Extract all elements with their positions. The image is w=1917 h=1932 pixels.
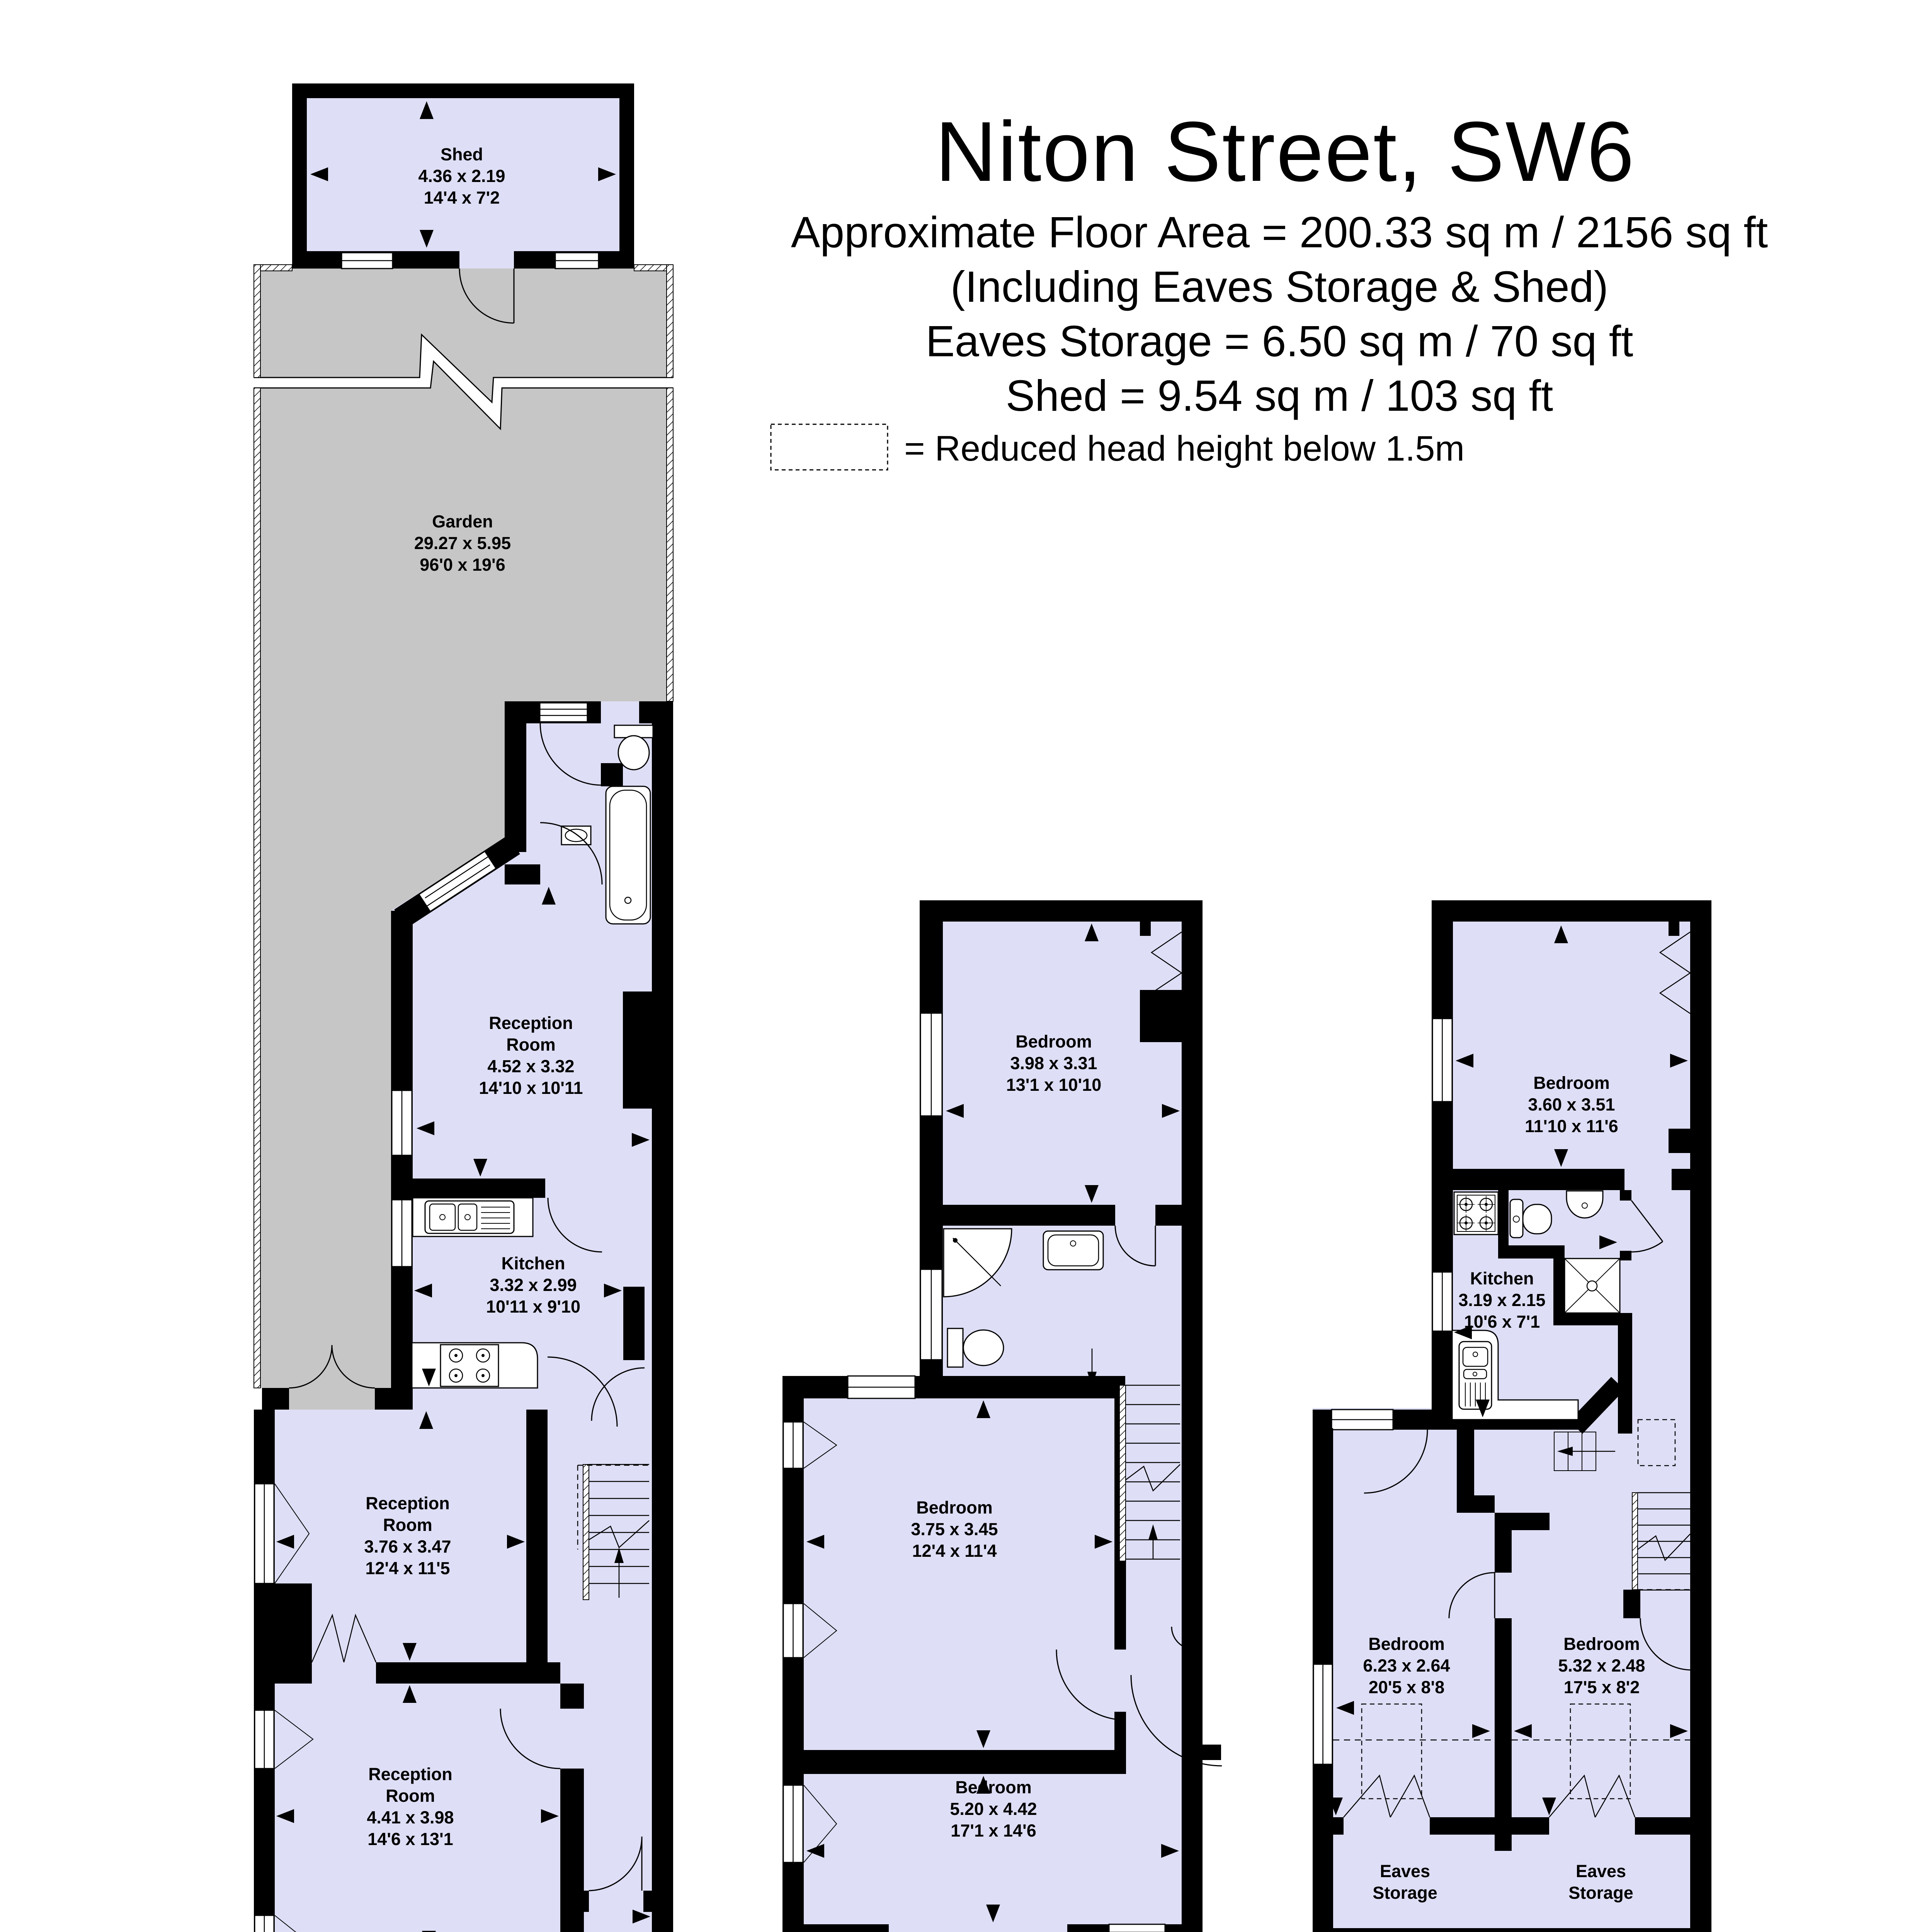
svg-text:(Including Eaves Storage & She: (Including Eaves Storage & Shed): [951, 262, 1608, 311]
svg-text:Reception: Reception: [489, 1013, 573, 1033]
svg-text:Eaves: Eaves: [1576, 1861, 1626, 1881]
svg-text:11'10 x 11'6: 11'10 x 11'6: [1525, 1116, 1618, 1136]
svg-text:Eaves Storage = 6.50 sq m / 70: Eaves Storage = 6.50 sq m / 70 sq ft: [925, 317, 1633, 366]
svg-text:12'4 x 11'5: 12'4 x 11'5: [365, 1558, 450, 1578]
svg-text:6.23 x 2.64: 6.23 x 2.64: [1363, 1656, 1450, 1675]
svg-text:4.52 x 3.32: 4.52 x 3.32: [487, 1056, 574, 1076]
svg-text:17'1 x 14'6: 17'1 x 14'6: [951, 1821, 1036, 1840]
svg-text:Room: Room: [386, 1786, 435, 1806]
svg-text:Shed = 9.54 sq m / 103 sq ft: Shed = 9.54 sq m / 103 sq ft: [1006, 371, 1553, 420]
svg-text:Shed: Shed: [441, 145, 483, 164]
svg-text:5.20 x 4.42: 5.20 x 4.42: [950, 1799, 1037, 1819]
svg-text:17'5 x 8'2: 17'5 x 8'2: [1564, 1677, 1640, 1697]
svg-text:Approximate Floor Area = 200.3: Approximate Floor Area = 200.33 sq m / 2…: [791, 208, 1768, 257]
svg-text:Storage: Storage: [1568, 1883, 1633, 1903]
svg-text:Room: Room: [506, 1035, 556, 1054]
svg-text:14'10 x 10'11: 14'10 x 10'11: [479, 1078, 583, 1098]
svg-text:29.27 x 5.95: 29.27 x 5.95: [414, 533, 511, 553]
svg-text:13'1 x 10'10: 13'1 x 10'10: [1006, 1075, 1102, 1095]
svg-text:4.41 x 3.98: 4.41 x 3.98: [367, 1808, 454, 1827]
svg-text:Bedroom: Bedroom: [1368, 1634, 1445, 1654]
svg-text:14'4 x 7'2: 14'4 x 7'2: [424, 188, 500, 207]
svg-text:Bedroom: Bedroom: [1015, 1032, 1092, 1051]
svg-text:4.36 x 2.19: 4.36 x 2.19: [418, 166, 505, 186]
svg-text:96'0 x 19'6: 96'0 x 19'6: [420, 555, 505, 575]
svg-text:10'11 x 9'10: 10'11 x 9'10: [486, 1297, 580, 1316]
svg-text:Bedroom: Bedroom: [916, 1498, 993, 1517]
svg-text:Storage: Storage: [1373, 1883, 1437, 1903]
svg-text:Kitchen: Kitchen: [1470, 1269, 1534, 1288]
svg-text:3.60 x 3.51: 3.60 x 3.51: [1528, 1095, 1615, 1114]
svg-text:10'6 x 7'1: 10'6 x 7'1: [1464, 1312, 1540, 1332]
svg-text:14'6 x 13'1: 14'6 x 13'1: [367, 1829, 453, 1849]
svg-text:3.76 x 3.47: 3.76 x 3.47: [364, 1537, 451, 1556]
svg-text:Kitchen: Kitchen: [501, 1253, 565, 1273]
svg-text:Bedroom: Bedroom: [1563, 1634, 1640, 1654]
svg-text:Garden: Garden: [432, 512, 493, 531]
svg-text:3.98 x 3.31: 3.98 x 3.31: [1010, 1053, 1097, 1073]
svg-text:Bedroom: Bedroom: [955, 1777, 1032, 1797]
svg-text:= Reduced head height below 1.: = Reduced head height below 1.5m: [904, 429, 1465, 468]
svg-text:12'4 x 11'4: 12'4 x 11'4: [912, 1541, 997, 1561]
svg-text:Room: Room: [383, 1515, 432, 1535]
svg-text:5.32 x 2.48: 5.32 x 2.48: [1558, 1656, 1645, 1675]
svg-text:Bedroom: Bedroom: [1533, 1073, 1610, 1093]
svg-text:Eaves: Eaves: [1380, 1861, 1430, 1881]
svg-text:3.19 x 2.15: 3.19 x 2.15: [1458, 1290, 1545, 1310]
svg-text:3.32 x 2.99: 3.32 x 2.99: [490, 1275, 577, 1295]
svg-text:3.75 x 3.45: 3.75 x 3.45: [911, 1519, 998, 1539]
svg-text:20'5 x 8'8: 20'5 x 8'8: [1369, 1677, 1445, 1697]
svg-text:Reception: Reception: [368, 1764, 452, 1784]
svg-text:Reception: Reception: [366, 1493, 450, 1513]
svg-text:Niton Street, SW6: Niton Street, SW6: [935, 104, 1635, 199]
